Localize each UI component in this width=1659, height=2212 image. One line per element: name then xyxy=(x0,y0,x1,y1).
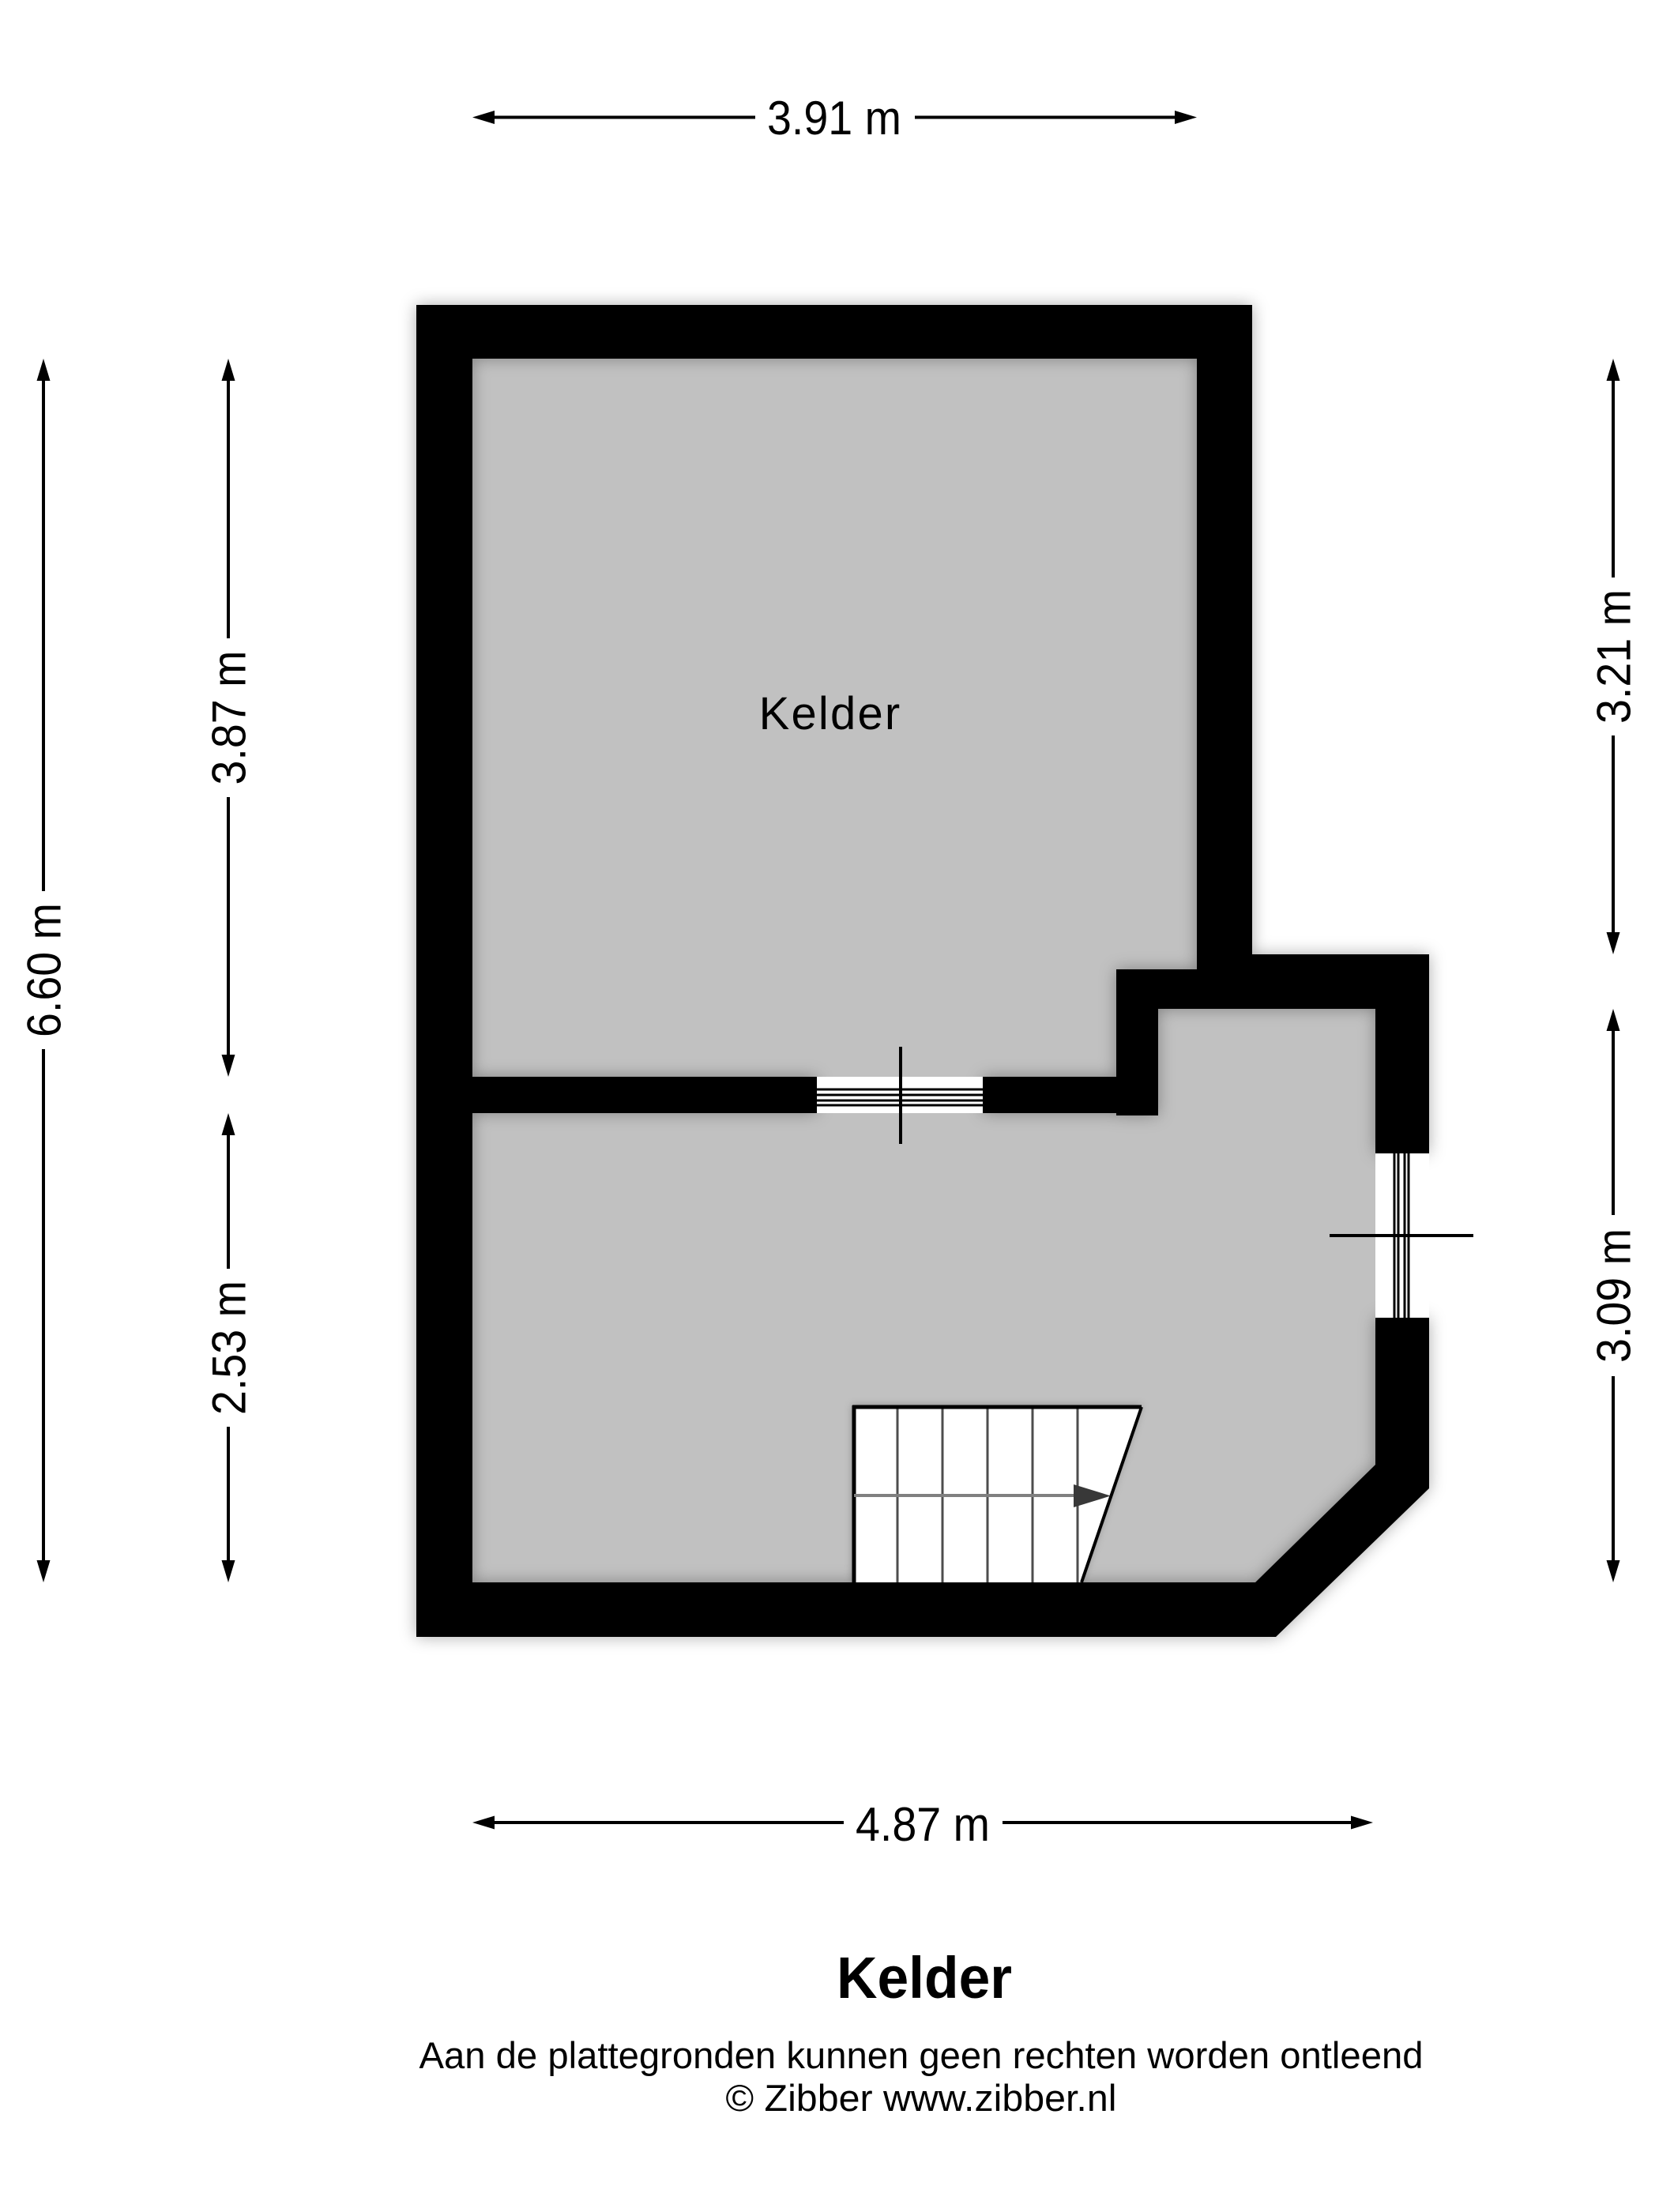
svg-text:2.53 m: 2.53 m xyxy=(203,1281,256,1415)
svg-text:3.91 m: 3.91 m xyxy=(767,92,901,145)
svg-text:Aan de plattegronden kunnen ge: Aan de plattegronden kunnen geen rechten… xyxy=(419,2034,1424,2076)
svg-text:3.09 m: 3.09 m xyxy=(1588,1228,1641,1363)
svg-text:3.21 m: 3.21 m xyxy=(1588,589,1641,724)
svg-text:6.60 m: 6.60 m xyxy=(18,903,71,1037)
svg-text:Kelder: Kelder xyxy=(837,1945,1012,2011)
svg-text:3.87 m: 3.87 m xyxy=(203,651,256,785)
svg-text:© Zibber www.zibber.nl: © Zibber www.zibber.nl xyxy=(726,2077,1117,2119)
svg-text:4.87 m: 4.87 m xyxy=(856,1798,990,1851)
svg-text:Kelder: Kelder xyxy=(759,688,902,739)
